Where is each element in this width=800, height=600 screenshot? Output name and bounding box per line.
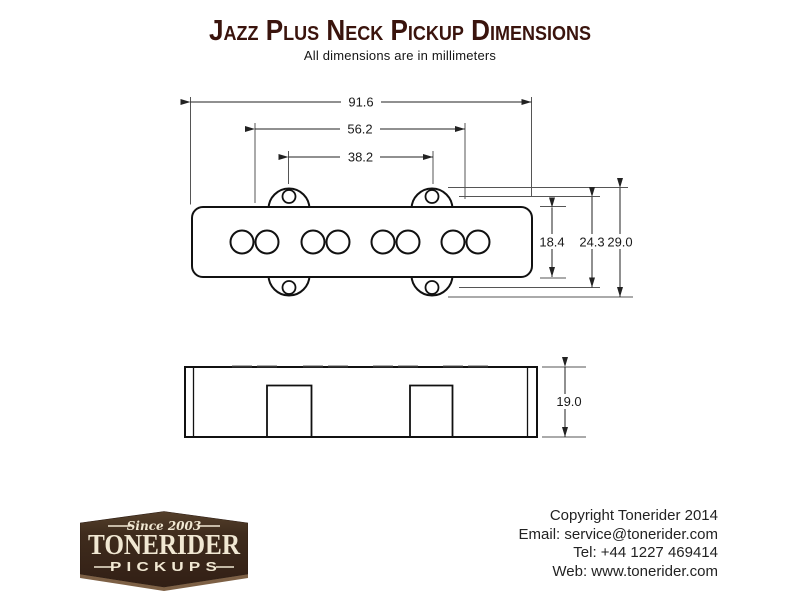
email-line: Email: service@tonerider.com	[519, 526, 718, 545]
copyright-line: Copyright Tonerider 2014	[519, 507, 718, 526]
dim-overall-width: 91.6	[348, 95, 373, 110]
top-view: 91.6 56.2 38.2 18.4 24.3 29.0	[191, 95, 638, 298]
website-line: Web: www.tonerider.com	[519, 563, 718, 582]
contact-block: Copyright Tonerider 2014 Email: service@…	[519, 507, 718, 581]
dim-mount-width: 56.2	[347, 122, 372, 137]
dim-screw-vertical: 24.3	[579, 235, 604, 250]
side-view: 19.0	[185, 366, 587, 437]
phone-line: Tel: +44 1227 469414	[519, 544, 718, 563]
logo-product-text: PICKUPS	[110, 559, 222, 574]
dim-overall-height: 29.0	[607, 235, 632, 250]
dim-screw-spacing: 38.2	[348, 150, 373, 165]
dim-body-height: 18.4	[539, 235, 564, 250]
logo-brand-text: TONERIDER	[88, 529, 241, 561]
side-body-outline	[185, 367, 537, 437]
dim-side-depth: 19.0	[556, 394, 581, 409]
tonerider-logo: Since 2003 TONERIDER PICKUPS	[80, 510, 248, 594]
